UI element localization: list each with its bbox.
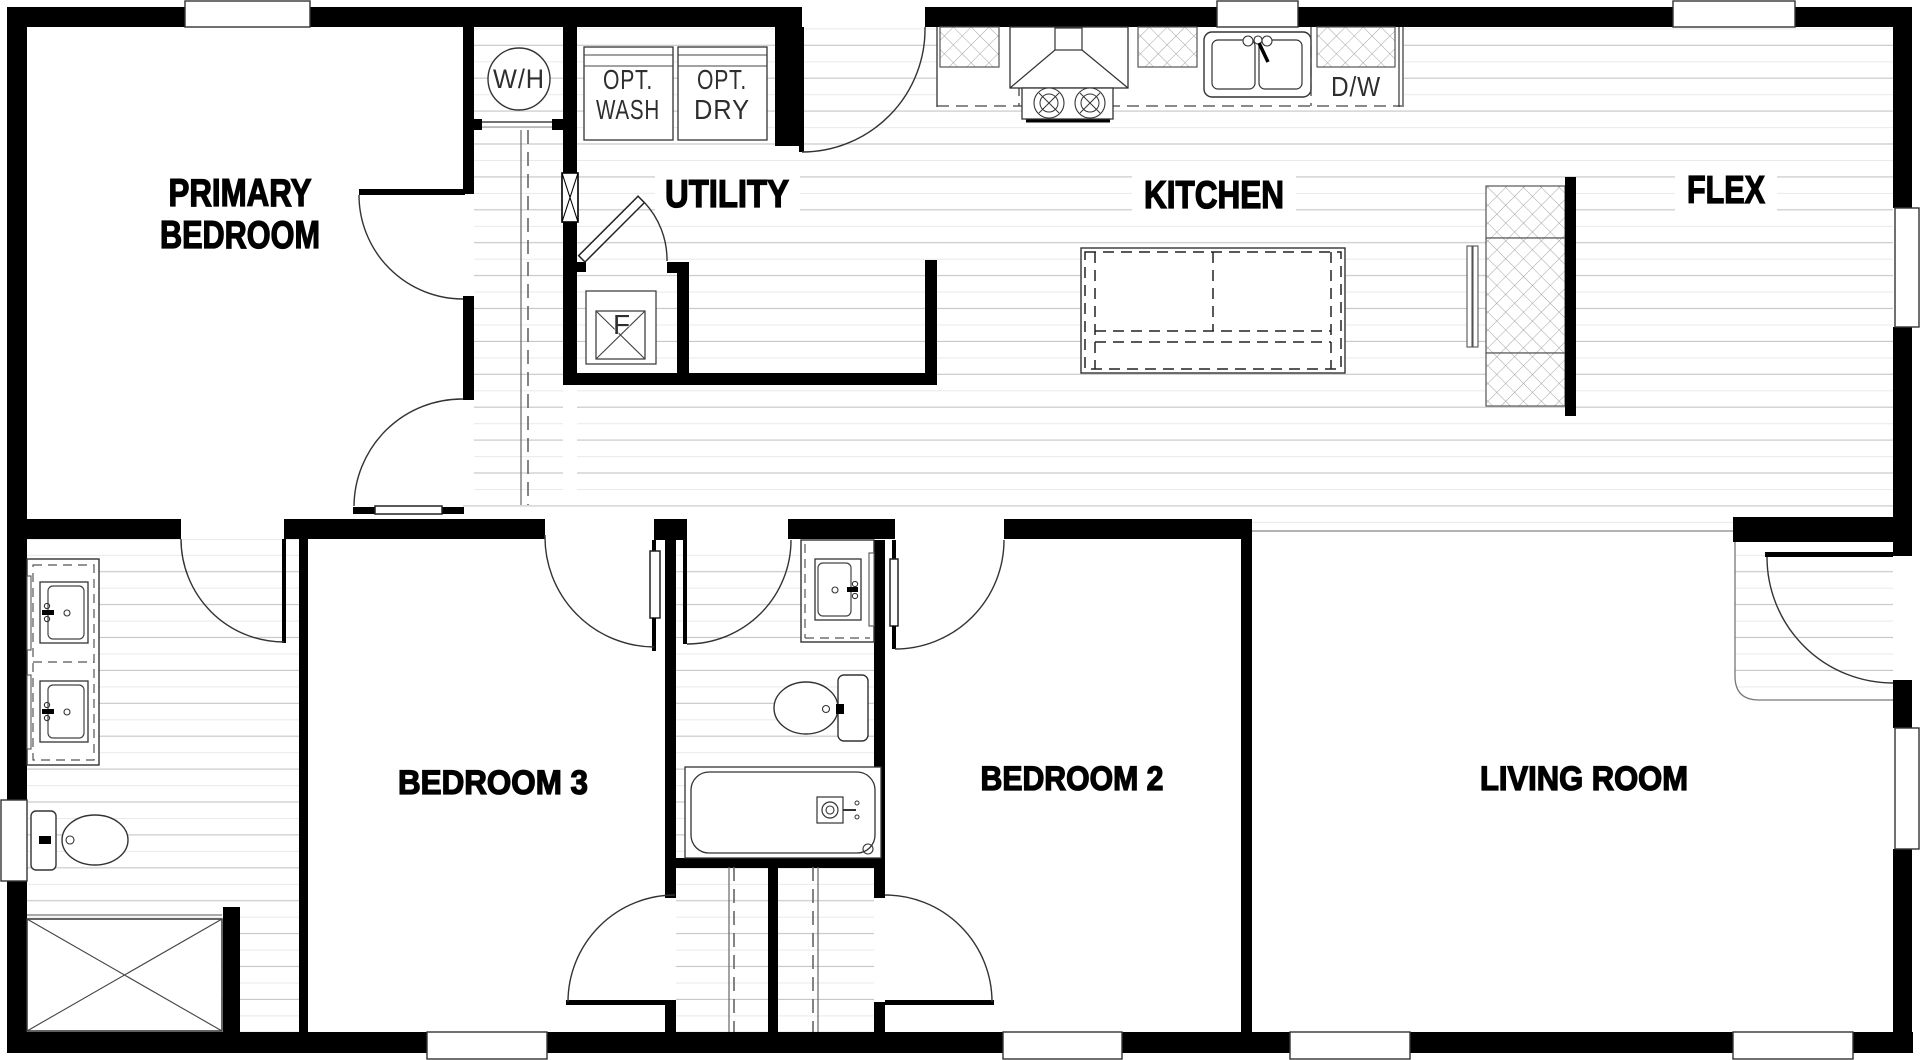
svg-text:OPT.: OPT. xyxy=(697,64,747,95)
svg-text:BEDROOM: BEDROOM xyxy=(160,214,320,257)
svg-text:DRY: DRY xyxy=(694,94,750,125)
svg-text:D/W: D/W xyxy=(1331,71,1381,102)
svg-text:OPT.: OPT. xyxy=(603,64,653,95)
svg-text:FLEX: FLEX xyxy=(1687,169,1765,212)
svg-text:KITCHEN: KITCHEN xyxy=(1144,174,1284,217)
svg-text:WASH: WASH xyxy=(596,94,660,125)
svg-text:LIVING ROOM: LIVING ROOM xyxy=(1480,760,1688,798)
svg-text:F: F xyxy=(613,309,631,340)
svg-text:PRIMARY: PRIMARY xyxy=(169,172,312,215)
svg-text:BEDROOM 3: BEDROOM 3 xyxy=(398,764,588,802)
svg-text:W/H: W/H xyxy=(493,64,545,94)
svg-text:UTILITY: UTILITY xyxy=(665,173,789,216)
svg-text:BEDROOM 2: BEDROOM 2 xyxy=(981,760,1164,798)
